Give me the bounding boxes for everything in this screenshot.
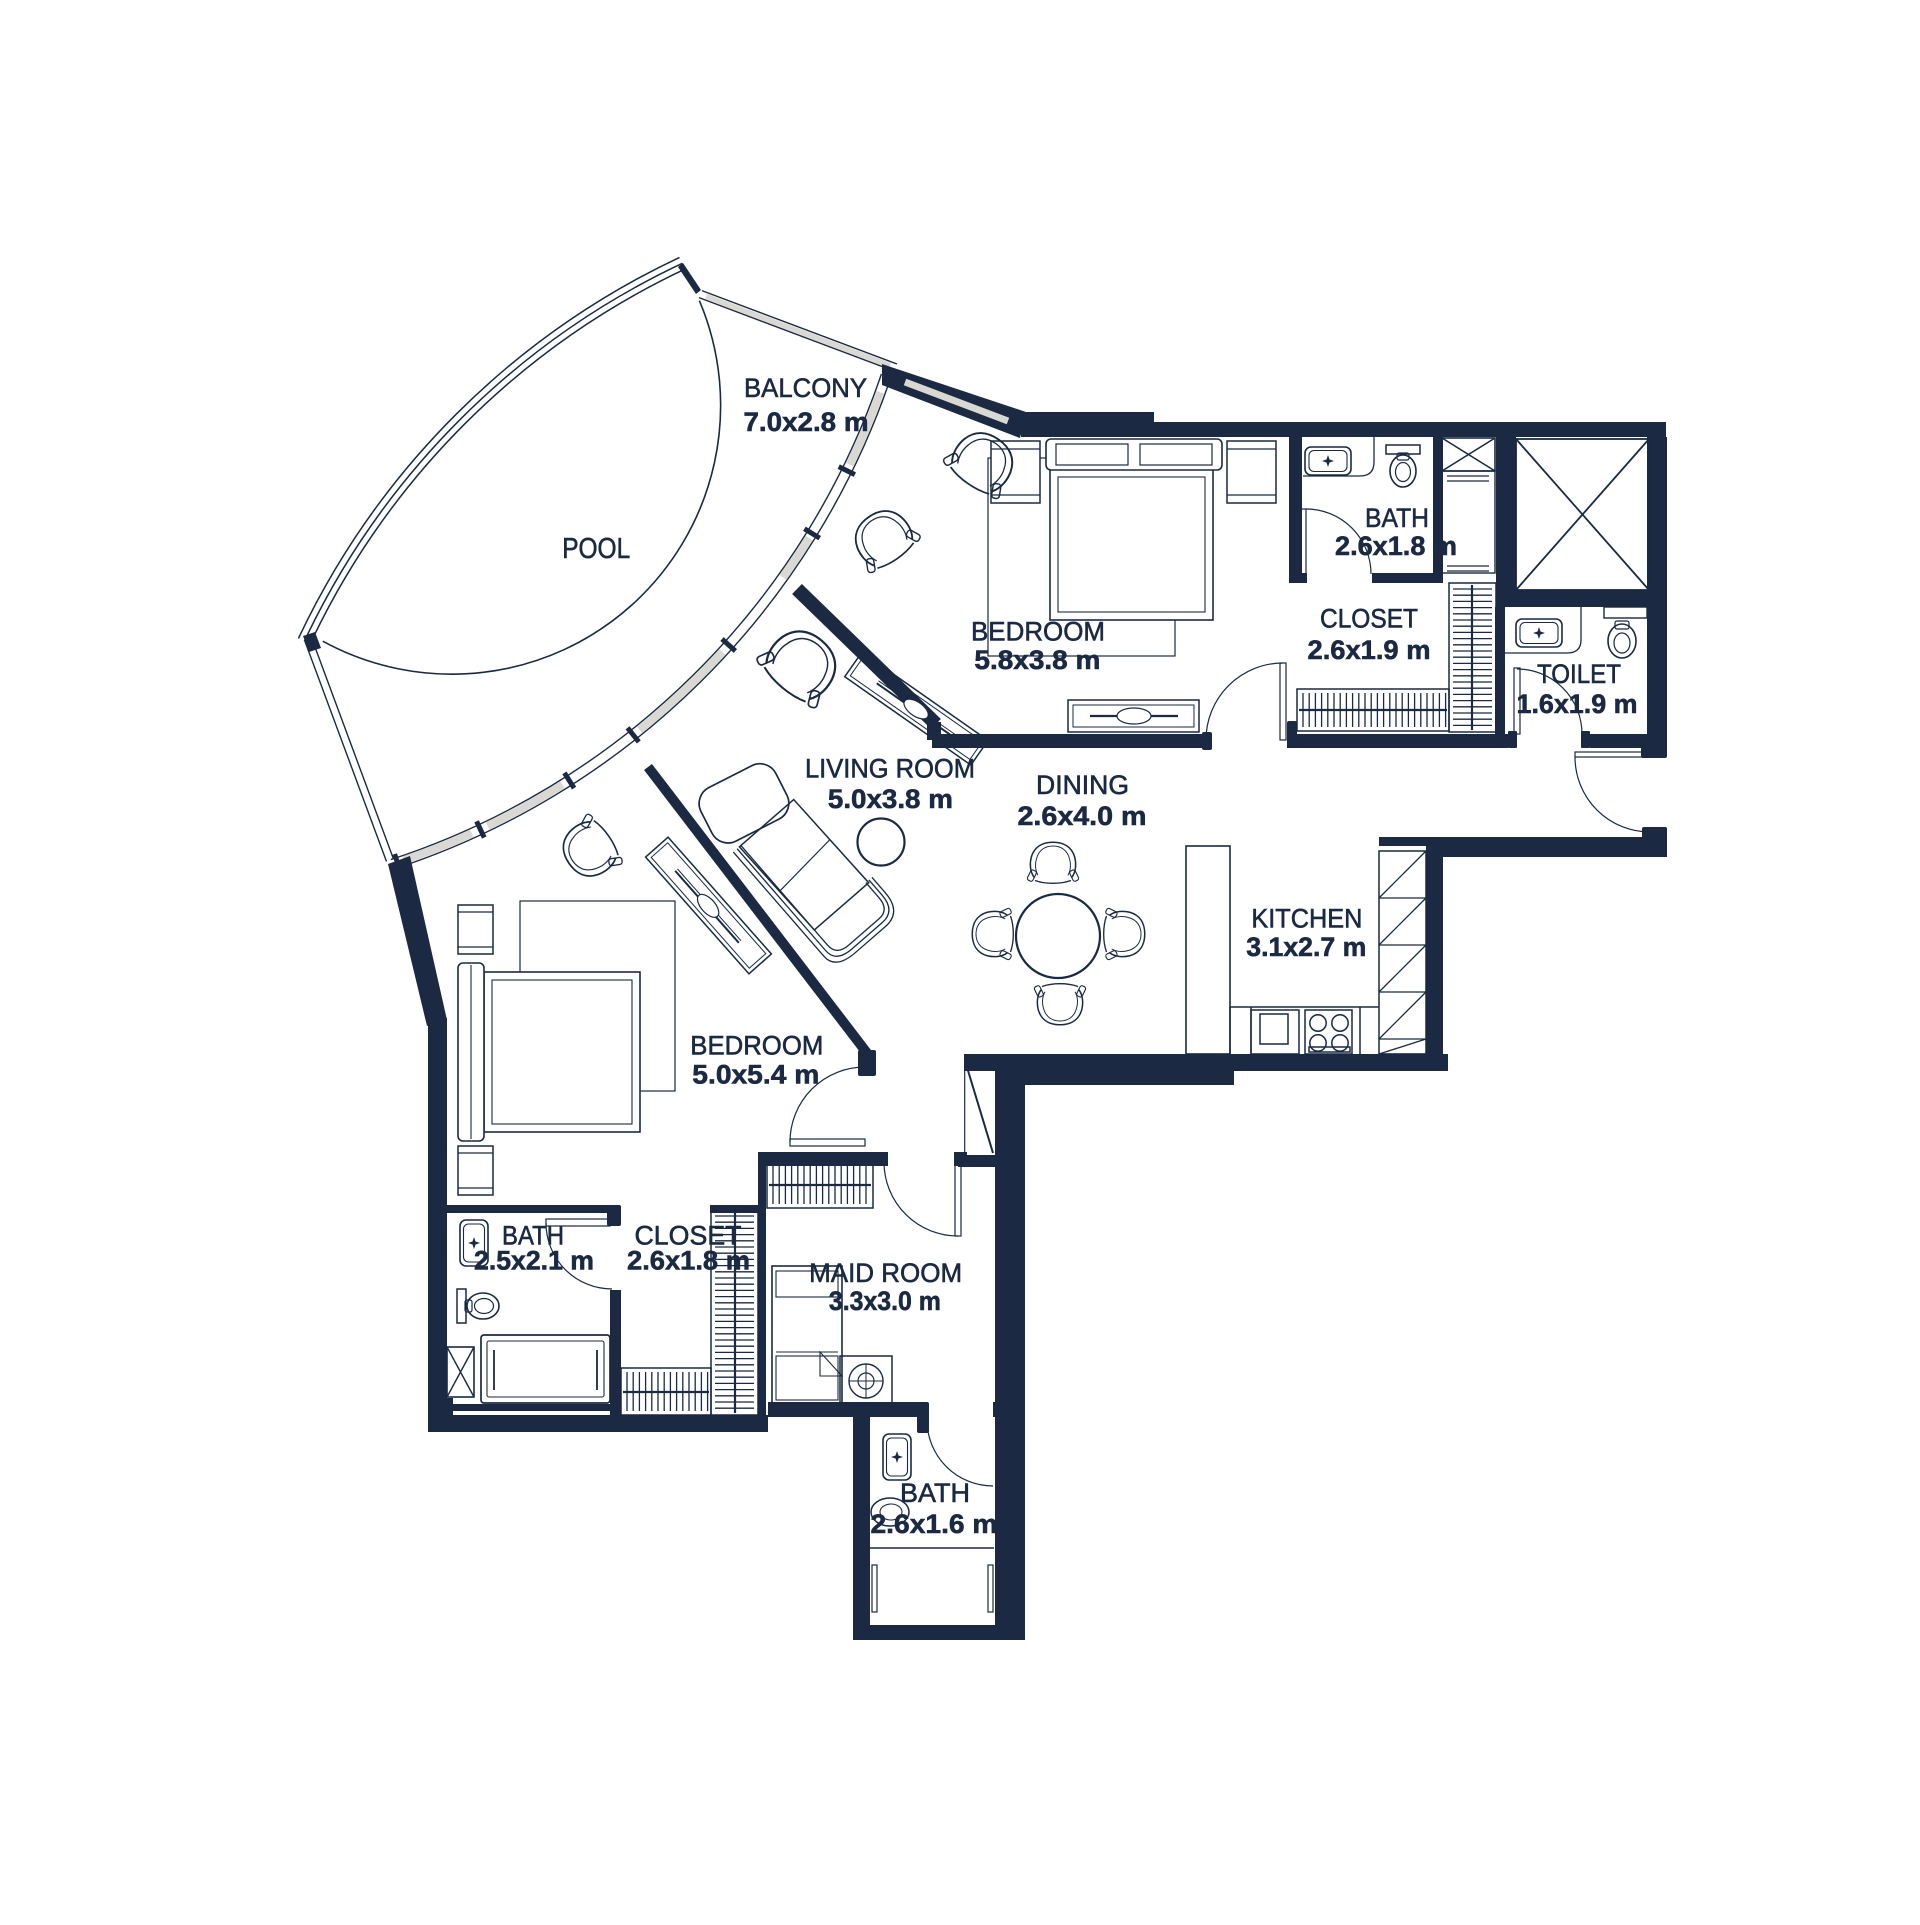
svg-text:CLOSET: CLOSET xyxy=(1320,604,1418,634)
svg-text:LIVING ROOM: LIVING ROOM xyxy=(805,754,975,784)
svg-text:5.0x5.4 m: 5.0x5.4 m xyxy=(692,1059,819,1089)
svg-text:POOL: POOL xyxy=(562,533,630,565)
svg-text:3.3x3.0 m: 3.3x3.0 m xyxy=(829,1286,941,1316)
svg-text:5.0x3.8 m: 5.0x3.8 m xyxy=(828,784,953,814)
svg-text:2.6x1.8 m: 2.6x1.8 m xyxy=(627,1246,750,1276)
svg-text:BEDROOM: BEDROOM xyxy=(690,1031,823,1061)
svg-text:BATH: BATH xyxy=(1365,503,1429,533)
svg-text:BEDROOM: BEDROOM xyxy=(971,617,1105,647)
svg-text:TOILET: TOILET xyxy=(1537,659,1621,689)
svg-text:2.6x1.9 m: 2.6x1.9 m xyxy=(1308,635,1431,665)
svg-text:2.6x4.0 m: 2.6x4.0 m xyxy=(1018,801,1147,831)
svg-text:2.5x2.1 m: 2.5x2.1 m xyxy=(474,1246,594,1276)
svg-text:DINING: DINING xyxy=(1036,770,1129,800)
svg-text:3.1x2.7 m: 3.1x2.7 m xyxy=(1246,932,1366,962)
svg-text:2.6x1.6 m: 2.6x1.6 m xyxy=(871,1509,998,1539)
svg-text:7.0x2.8 m: 7.0x2.8 m xyxy=(744,407,869,437)
svg-text:BALCONY: BALCONY xyxy=(744,373,867,403)
svg-text:KITCHEN: KITCHEN xyxy=(1251,904,1362,934)
svg-text:MAID ROOM: MAID ROOM xyxy=(809,1258,962,1288)
svg-text:BATH: BATH xyxy=(900,1478,970,1508)
svg-text:5.8x3.8 m: 5.8x3.8 m xyxy=(974,645,1100,675)
svg-text:1.6x1.9 m: 1.6x1.9 m xyxy=(1517,689,1638,719)
svg-text:2.6x1.8 m: 2.6x1.8 m xyxy=(1335,531,1457,561)
